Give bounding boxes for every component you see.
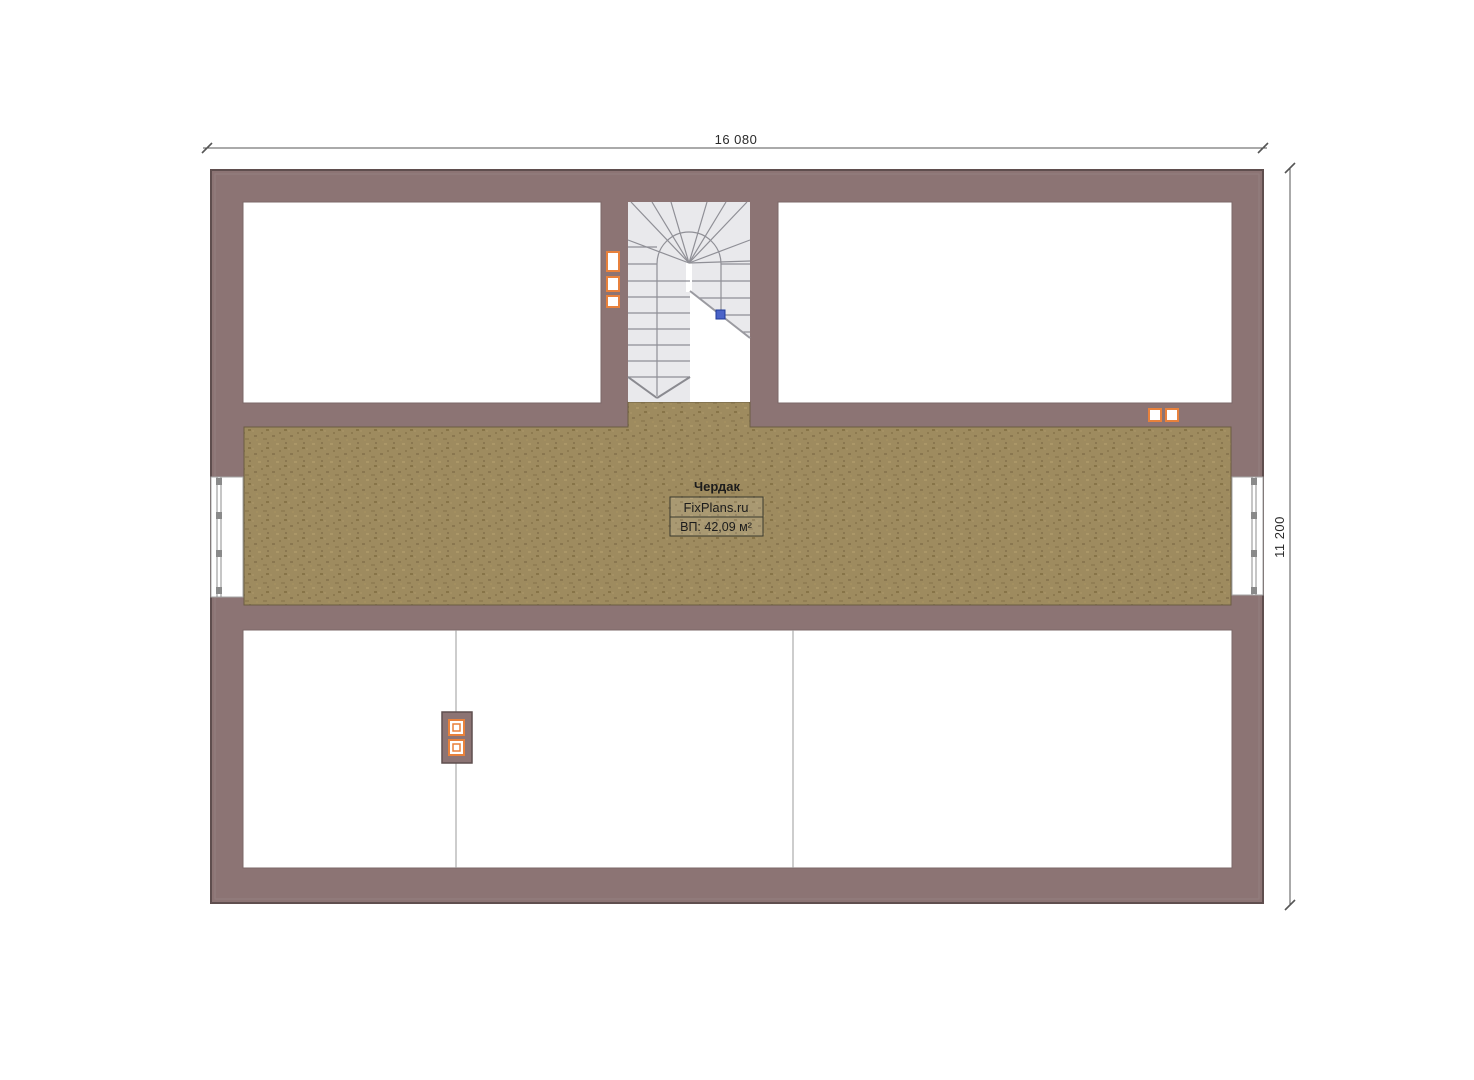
dimension-horizontal: 16 080 xyxy=(202,132,1268,153)
chimney-block xyxy=(442,712,472,763)
power-outlet-icon xyxy=(607,296,619,307)
floor-plan-canvas: 16 080 11 200 xyxy=(0,0,1474,1080)
window-left xyxy=(211,477,243,597)
dimension-vertical: 11 200 xyxy=(1272,163,1295,910)
floor-plan-drawing: 16 080 11 200 xyxy=(0,0,1474,1080)
chimney-vent-icon xyxy=(449,720,464,735)
dimension-horizontal-label: 16 080 xyxy=(715,132,758,147)
room-bottom xyxy=(243,630,1232,868)
stairs xyxy=(628,202,750,402)
room-top-left xyxy=(243,202,601,403)
power-outlet-icon xyxy=(607,277,619,291)
window-right xyxy=(1232,477,1263,595)
dimension-vertical-label: 11 200 xyxy=(1272,516,1287,558)
stair-wall-vents xyxy=(607,252,619,307)
room-top-right xyxy=(778,202,1232,403)
power-outlet-icon xyxy=(607,252,619,271)
stair-section-marker-icon xyxy=(716,310,725,319)
room-brand: FixPlans.ru xyxy=(683,500,748,515)
room-area: ВП: 42,09 м² xyxy=(680,520,752,534)
window-opening xyxy=(1232,477,1263,595)
window-opening xyxy=(211,477,243,597)
power-outlet-icon xyxy=(1149,409,1161,421)
power-outlet-icon xyxy=(1166,409,1178,421)
chimney-vent-icon xyxy=(449,740,464,755)
stair-newel xyxy=(686,262,692,292)
room-title: Чердак xyxy=(694,479,740,494)
